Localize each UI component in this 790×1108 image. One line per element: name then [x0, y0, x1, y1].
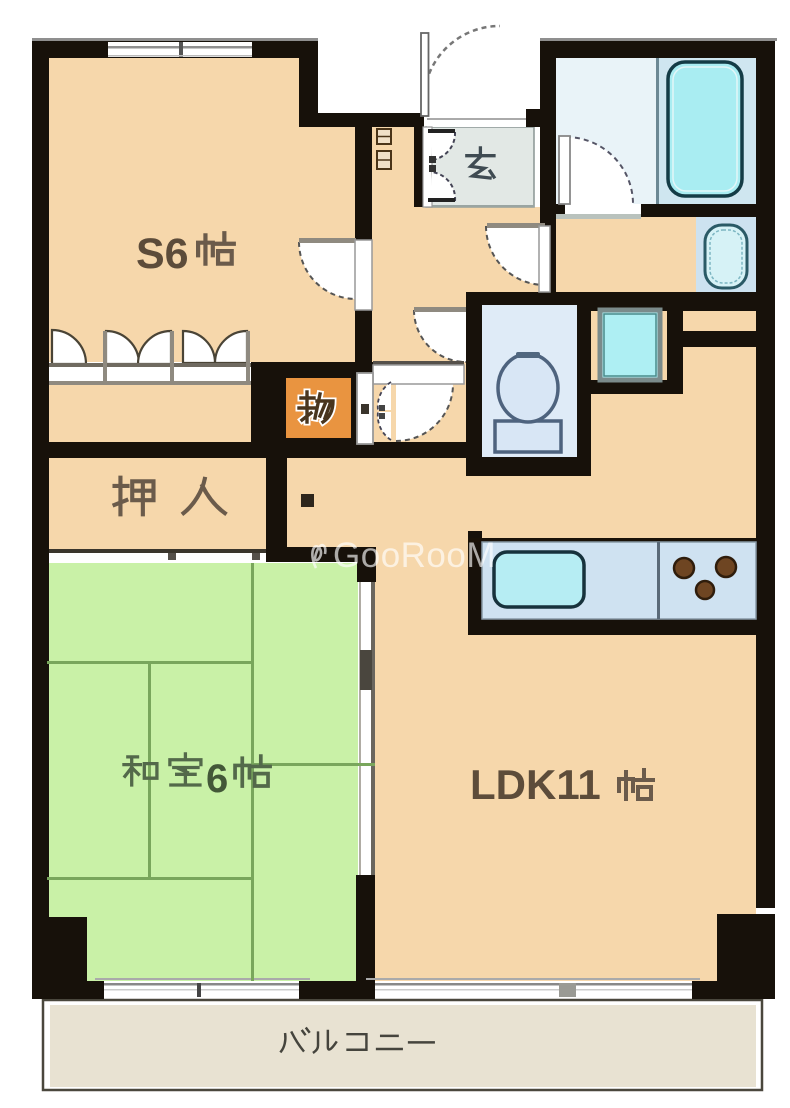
svg-text:GooRooM: GooRooM	[333, 536, 496, 575]
svg-text:S6: S6	[136, 230, 189, 278]
svg-text:6: 6	[206, 757, 228, 801]
svg-text:LDK11: LDK11	[470, 761, 601, 808]
